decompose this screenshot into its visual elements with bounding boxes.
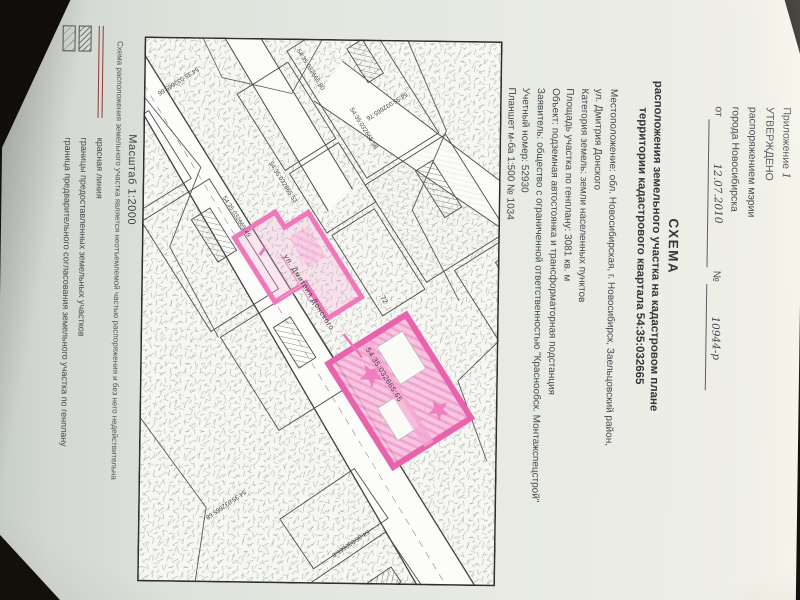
validity-note: Схема расположения земельного участка яв… xyxy=(109,41,124,480)
outline-box-symbol xyxy=(62,25,76,127)
document-title: СХЕМА расположения земельного участка на… xyxy=(629,0,684,499)
legend: красная линия границы предоставленных зе… xyxy=(56,25,110,447)
title-line1: СХЕМА xyxy=(662,0,684,499)
number-field: 10944-р xyxy=(705,285,724,391)
hatched-box-symbol xyxy=(78,25,92,127)
date-handwritten: 12.07.2010 xyxy=(708,164,726,224)
approval-line-date: от 12.07.2010 № 10944-р xyxy=(705,106,727,391)
date-field: 12.07.2010 xyxy=(706,120,726,268)
parcel-info-block: Местоположение: обл. Новосибирская, г. Н… xyxy=(496,87,620,589)
red-line-symbol xyxy=(98,26,104,128)
approval-block: Приложение 1 УТВЕРЖДЕНО распоряжением мэ… xyxy=(705,106,795,392)
scale-label: Масштаб 1:2000 xyxy=(125,134,138,225)
number-handwritten: 10944-р xyxy=(706,316,724,360)
photographed-document: Приложение 1 УТВЕРЖДЕНО распоряжением мэ… xyxy=(0,0,800,600)
appendix-label: Приложение xyxy=(780,107,793,169)
legend-label-red-line: красная линия xyxy=(94,128,105,199)
appendix-number-handwritten: 1 xyxy=(777,172,794,179)
from-label: от xyxy=(713,106,725,117)
cadastral-map-svg: 54:35:032665:65 :72 54:35:032665:58 54:3… xyxy=(137,36,503,586)
legend-label-preliminary: граница предварительного согласования зе… xyxy=(59,127,73,446)
document-page: Приложение 1 УТВЕРЖДЕНО распоряжением мэ… xyxy=(0,0,800,600)
number-label: № xyxy=(710,271,722,282)
cadastral-map: 54:35:032665:65 :72 54:35:032665:58 54:3… xyxy=(137,36,503,586)
legend-label-granted: границы предоставленных земельных участк… xyxy=(76,128,89,337)
